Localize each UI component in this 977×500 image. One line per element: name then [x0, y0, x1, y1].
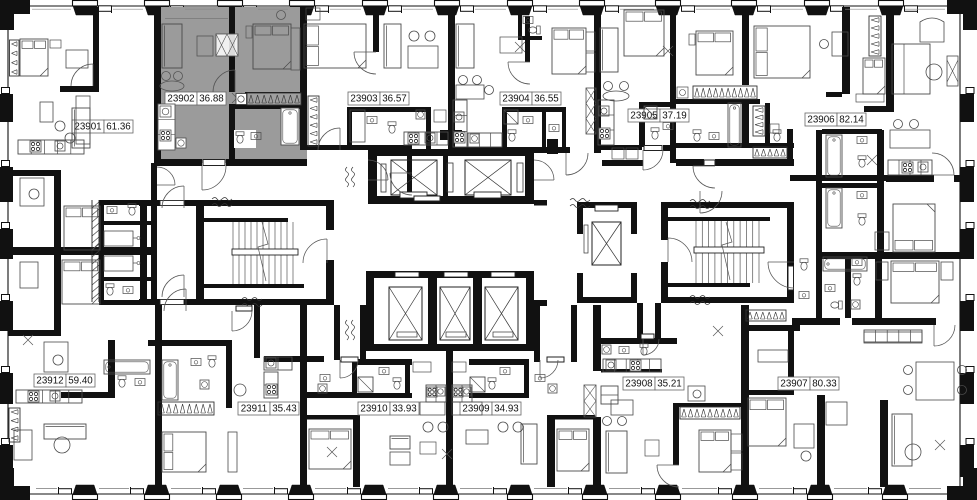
svg-text:23901: 23901	[74, 122, 101, 133]
svg-text:36.55: 36.55	[534, 94, 559, 105]
svg-text:23911: 23911	[241, 404, 268, 415]
svg-text:23910: 23910	[360, 404, 388, 415]
svg-text:36.88: 36.88	[199, 94, 224, 105]
svg-text:23912: 23912	[36, 376, 63, 387]
svg-text:82.14: 82.14	[839, 115, 864, 126]
svg-text:23902: 23902	[167, 94, 194, 105]
svg-text:23909: 23909	[462, 404, 489, 415]
svg-text:23908: 23908	[625, 379, 653, 390]
svg-text:23906: 23906	[807, 115, 835, 126]
svg-text:35.43: 35.43	[272, 404, 297, 415]
svg-text:59.40: 59.40	[68, 376, 93, 387]
svg-text:37.19: 37.19	[662, 111, 687, 122]
svg-text:33.93: 33.93	[392, 404, 417, 415]
svg-text:23904: 23904	[502, 94, 530, 105]
svg-text:61.36: 61.36	[106, 122, 131, 133]
svg-text:23907: 23907	[780, 379, 807, 390]
svg-text:36.57: 36.57	[382, 94, 407, 105]
svg-text:34.93: 34.93	[494, 404, 519, 415]
svg-text:35.21: 35.21	[657, 379, 682, 390]
svg-text:80.33: 80.33	[812, 379, 837, 390]
svg-text:23903: 23903	[350, 94, 378, 105]
